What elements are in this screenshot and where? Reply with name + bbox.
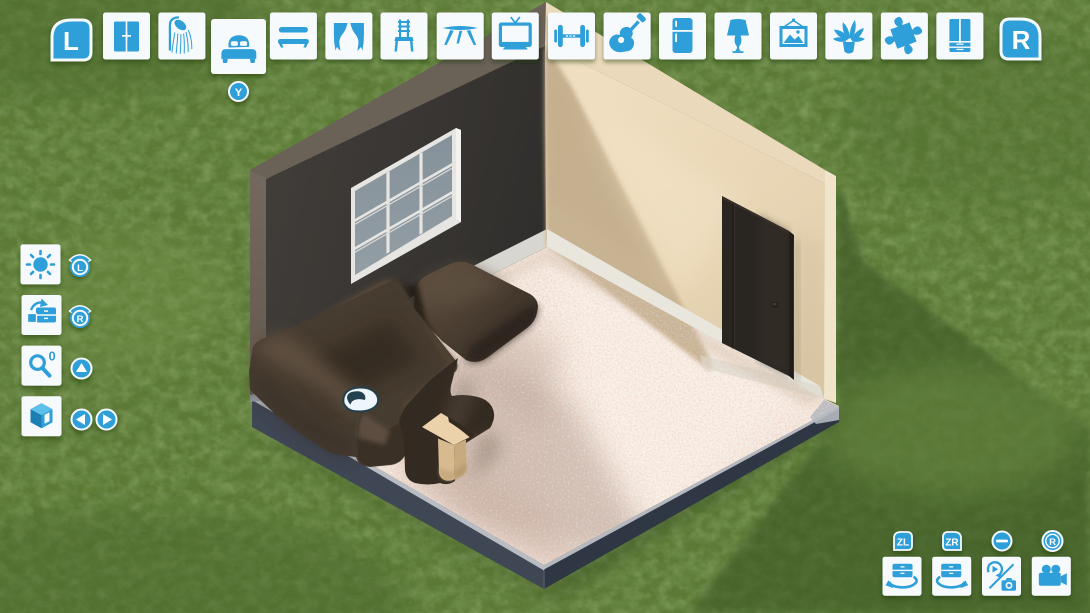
svg-text:L: L — [63, 26, 79, 56]
svg-text:Y: Y — [235, 87, 243, 99]
svg-text:ZR: ZR — [945, 538, 959, 549]
svg-text:R: R — [77, 314, 84, 325]
svg-text:0: 0 — [49, 349, 56, 364]
svg-text:L: L — [77, 263, 83, 274]
svg-text:ZL: ZL — [897, 538, 909, 549]
svg-text:R: R — [1012, 25, 1031, 55]
svg-text:R: R — [1049, 537, 1056, 548]
